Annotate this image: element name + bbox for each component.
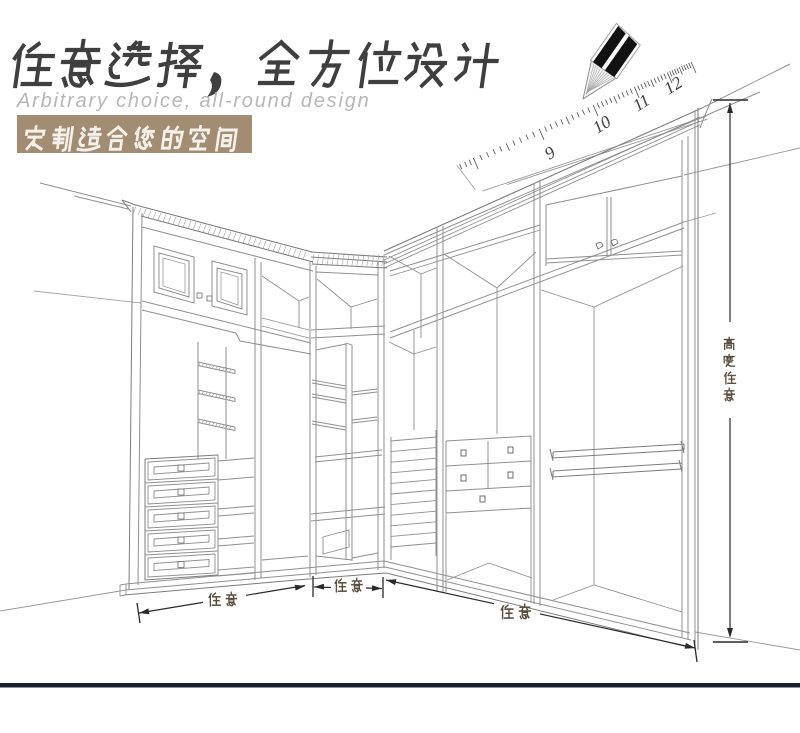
- svg-text:9: 9: [541, 142, 559, 164]
- svg-text:10: 10: [589, 111, 615, 137]
- svg-text:12: 12: [660, 72, 686, 98]
- svg-text:Arbitrary choice, all-round de: Arbitrary choice, all-round design: [16, 90, 371, 112]
